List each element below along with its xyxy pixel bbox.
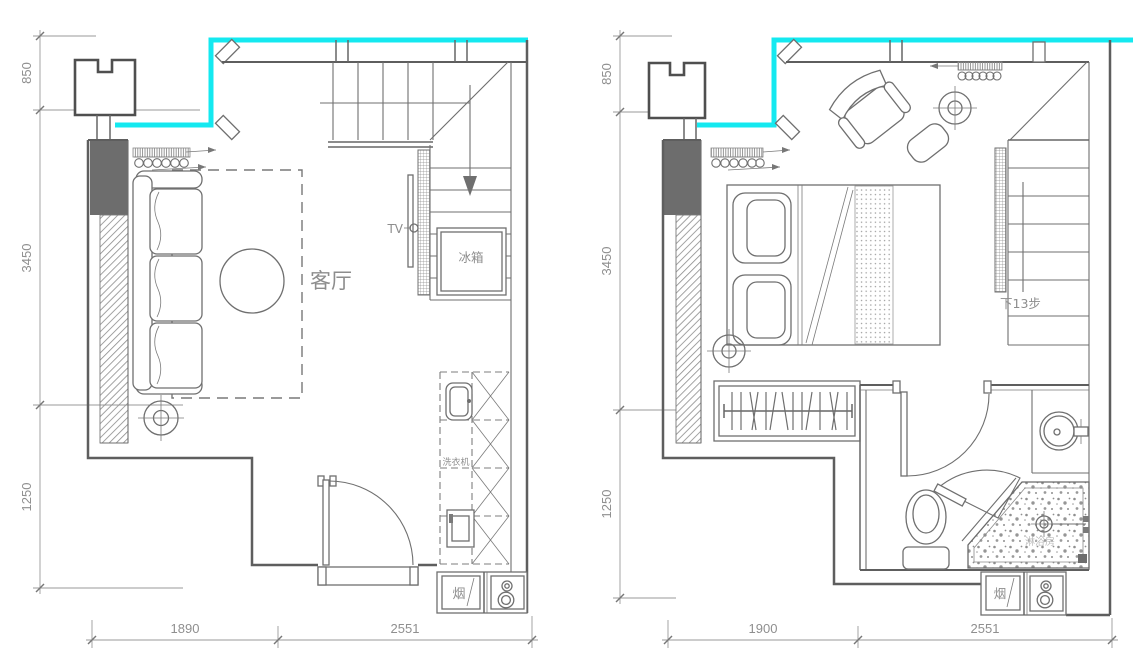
wardrobe	[714, 381, 860, 441]
dim-right-850: 850	[599, 63, 614, 85]
tv-feature-wall	[418, 150, 430, 295]
sofa	[133, 171, 202, 394]
washer-label: 洗衣机	[442, 456, 469, 468]
flue-label-left: 烟	[452, 587, 465, 602]
stair-note: 下13步	[1000, 296, 1041, 311]
structural-shaft-left	[75, 60, 135, 115]
dim-bottom-2551-left: 2551	[391, 621, 420, 636]
kitchen-flue-box: 烟	[437, 572, 527, 613]
dim-left-850: 850	[19, 62, 34, 84]
ottoman	[903, 120, 952, 166]
coffee-table	[220, 249, 284, 313]
shower-label: 淋浴房	[1025, 535, 1055, 548]
window-band-left	[115, 40, 528, 125]
hatched-wall	[676, 215, 701, 443]
fridge-label: 冰箱	[458, 250, 483, 265]
bathroom-door	[893, 381, 991, 476]
corner-shower: 淋浴房	[934, 470, 1089, 568]
left-plan-bottom-dimensions: 1890 2551	[86, 616, 538, 648]
kitchen-flue-box: 烟	[981, 572, 1066, 615]
dim-right-1250: 1250	[599, 490, 614, 519]
tv: TV	[386, 175, 418, 267]
toilet	[903, 490, 949, 569]
stair-balustrade	[995, 148, 1006, 292]
bathroom: 淋浴房	[860, 381, 1089, 570]
window-band-right	[697, 40, 1133, 125]
entry-door	[318, 476, 418, 585]
left-floor-plan: 850 3450 1250 1890 2551	[19, 30, 538, 648]
curtain-symbol	[930, 62, 1002, 80]
corner-marker-icon	[777, 39, 801, 63]
solid-wall-block	[90, 140, 128, 215]
floor-drain	[1078, 554, 1087, 563]
dim-right-3450: 3450	[599, 247, 614, 276]
corner-marker-icon	[215, 39, 239, 63]
hatched-wall	[100, 215, 128, 443]
floor-plan-drawing: 850 3450 1250 1890 2551	[0, 0, 1141, 672]
corner-marker-icon	[215, 115, 239, 139]
dim-bottom-1890: 1890	[171, 621, 200, 636]
corner-marker-icon	[775, 115, 799, 139]
flue-label-right: 烟	[994, 586, 1007, 601]
kitchen-sink	[446, 383, 472, 420]
ceiling-lamp-icon	[933, 86, 977, 130]
dim-left-3450: 3450	[19, 244, 34, 273]
dim-bottom-2551-right: 2551	[971, 621, 1000, 636]
right-plan-bottom-dimensions: 1900 2551	[662, 618, 1118, 648]
room-label-living: 客厅	[310, 269, 352, 293]
washbasin	[1040, 412, 1088, 450]
structural-shaft-right	[649, 63, 705, 118]
floor-plan-sheet: 850 3450 1250 1890 2551	[0, 0, 1141, 672]
double-bed	[727, 185, 940, 345]
right-floor-plan: 850 3450 1250 1900 2551	[599, 30, 1133, 648]
dim-bottom-1900: 1900	[749, 621, 778, 636]
bed-runner	[855, 186, 893, 344]
curtain-symbol	[133, 147, 216, 170]
ceiling-lamp-icon	[138, 395, 184, 441]
curtain-symbol	[711, 147, 790, 170]
tv-label: TV	[386, 222, 403, 236]
armchair	[824, 63, 914, 151]
solid-wall-block	[663, 140, 701, 215]
kitchen-cabinet-run: 洗衣机	[440, 372, 509, 564]
refrigerator: 冰箱	[437, 228, 506, 295]
small-appliance	[447, 510, 474, 547]
stair-down-arrow-icon	[463, 85, 477, 196]
dim-left-1250: 1250	[19, 483, 34, 512]
stairs-right-plan: 下13步	[1000, 62, 1089, 345]
